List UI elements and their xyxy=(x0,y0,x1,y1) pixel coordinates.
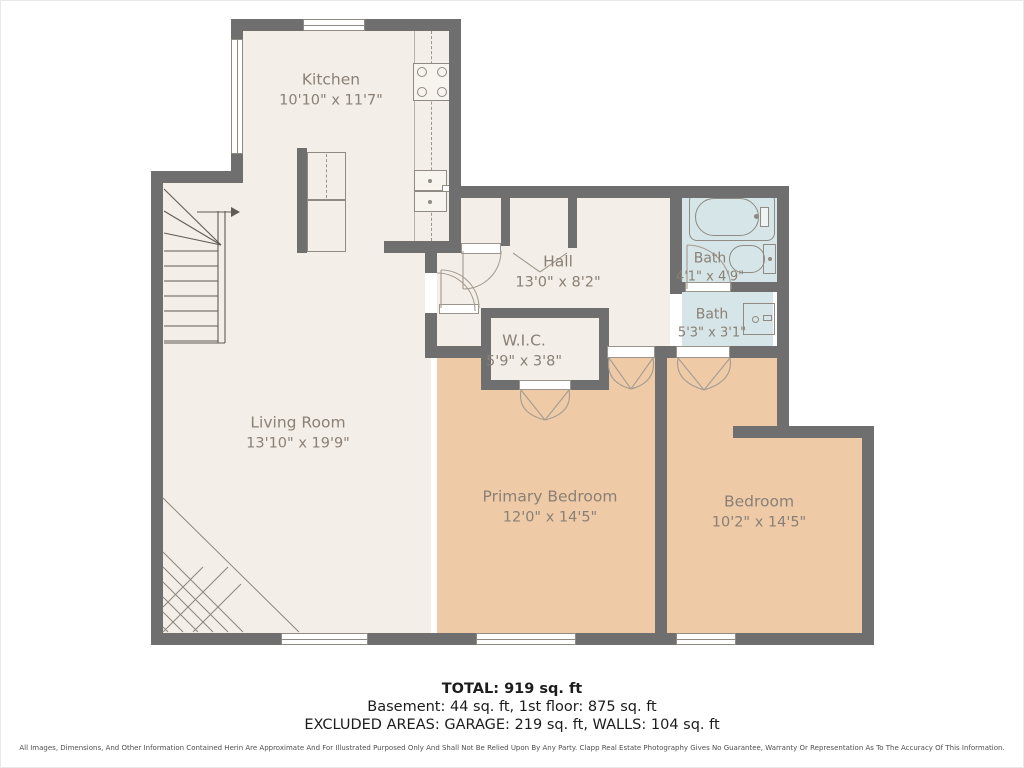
stove-burner xyxy=(417,87,427,97)
room-label-bedroom: Bedroom10'2" x 14'5" xyxy=(712,490,806,533)
room-label-hall: Hall13'0" x 8'2" xyxy=(515,250,600,293)
living-room-window xyxy=(281,633,368,645)
excluded-areas-text: EXCLUDED AREAS: GARAGE: 219 sq. ft, WALL… xyxy=(1,716,1023,734)
wall-kitchen-bottom xyxy=(384,241,461,253)
toilet-tank xyxy=(763,244,776,274)
room-label-bath-upper: Bath4'1" x 4'9" xyxy=(676,248,744,287)
wall-bedroom-notch xyxy=(733,426,874,438)
bedroom-door-sill xyxy=(676,346,730,358)
shower-stall xyxy=(743,303,775,335)
cabinet-dashed-line xyxy=(326,154,327,198)
closet-a-door-sill xyxy=(461,243,501,254)
primary-bedroom-window xyxy=(476,633,576,645)
room-label-wic: W.I.C.5'9" x 3'8" xyxy=(486,329,562,372)
wall-closet-divider xyxy=(501,198,510,246)
primary-bedroom-door-sill xyxy=(607,346,655,358)
room-label-living-room: Living Room13'10" x 19'9" xyxy=(246,411,350,454)
room-label-kitchen: Kitchen10'10" x 11'7" xyxy=(279,68,383,111)
sink-basin xyxy=(414,191,447,212)
pantry-cabinet xyxy=(307,200,346,252)
wall-bath-right xyxy=(777,186,789,438)
floor-breakdown-text: Basement: 44 sq. ft, 1st floor: 875 sq. … xyxy=(1,698,1023,716)
wall-living-topleft xyxy=(151,171,243,183)
kitchen-window-top xyxy=(303,19,365,31)
kitchen-window-left xyxy=(231,39,243,154)
shower-drain xyxy=(752,316,759,323)
room-label-bath-lower: Bath5'3" x 3'1" xyxy=(678,304,746,343)
total-area-text: TOTAL: 919 sq. ft xyxy=(1,680,1023,698)
hall-door-opening xyxy=(425,273,437,313)
bedroom-window xyxy=(676,633,736,645)
disclaimer-text: All Images, Dimensions, And Other Inform… xyxy=(1,744,1023,753)
shower-handle xyxy=(763,315,772,321)
bathtub-basin xyxy=(695,198,759,236)
wall-kitchen-right xyxy=(449,19,461,253)
room-label-primary-bedroom: Primary Bedroom12'0" x 14'5" xyxy=(483,485,618,528)
stove xyxy=(413,63,451,101)
wall-fridge-nook xyxy=(297,148,307,253)
wall-bedroom-right xyxy=(862,426,874,645)
wall-left-exterior xyxy=(151,171,163,645)
wall-closet-right xyxy=(568,198,577,248)
stove-burner xyxy=(417,67,427,77)
stove-burner xyxy=(437,67,447,77)
bathtub xyxy=(689,193,775,241)
wall-primary-bedroom-divider xyxy=(655,346,667,645)
faucet-icon xyxy=(760,207,769,227)
small-closet-door-sill xyxy=(439,304,479,314)
wall-wic-top xyxy=(481,308,609,318)
wall-hall-top xyxy=(449,186,789,198)
stove-burner xyxy=(437,87,447,97)
plan-summary: TOTAL: 919 sq. ft Basement: 44 sq. ft, 1… xyxy=(1,680,1023,753)
wic-door-sill xyxy=(519,380,571,390)
floor-plan: Kitchen10'10" x 11'7" Hall13'0" x 8'2" B… xyxy=(0,0,1024,768)
